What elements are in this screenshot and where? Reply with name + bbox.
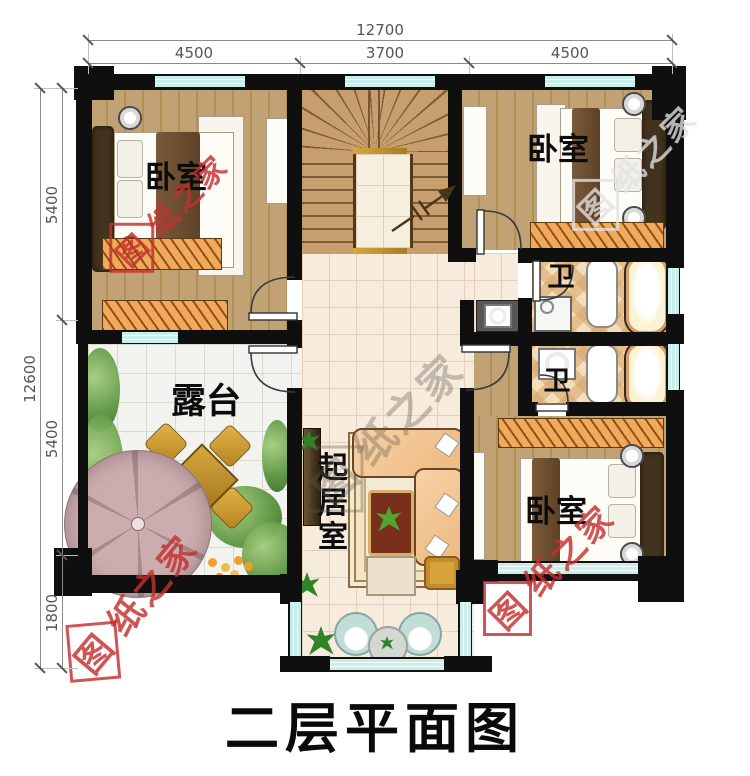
plan-title: 二层平面图 xyxy=(0,684,750,763)
dimension-line xyxy=(88,40,672,41)
room-label-bath-upper: 卫 xyxy=(546,264,576,292)
dim-left-total: 12600 xyxy=(21,349,39,409)
dim-top-seg2: 3700 xyxy=(345,44,425,62)
door-arc xyxy=(251,353,295,392)
dim-left-seg2: 5400 xyxy=(43,414,61,464)
stair-direction-arrow xyxy=(392,192,448,231)
door-leaf xyxy=(249,346,297,353)
dimension-line xyxy=(88,63,672,64)
door-leaf xyxy=(533,261,540,301)
door-arc xyxy=(251,277,295,313)
door-leaf xyxy=(249,313,297,320)
dimension-line xyxy=(62,88,63,668)
door-leaf xyxy=(536,404,568,411)
floor-plan-canvas: 卧室 卧室 卧室 卫 卫 露台 起居室 图纸之家 图纸之家 图纸之家 图纸之家 … xyxy=(0,0,750,776)
watermark-logo: 图 xyxy=(477,578,538,639)
stair-arrow-head xyxy=(438,185,456,202)
dim-left-seg1: 5400 xyxy=(43,180,61,230)
dimension-line xyxy=(40,88,41,668)
dim-top-seg3: 4500 xyxy=(530,44,610,62)
room-label-bath-lower: 卫 xyxy=(542,368,572,396)
watermark-logo: 图 xyxy=(105,221,159,275)
door-leaf xyxy=(462,345,510,352)
dim-left-seg3: 1800 xyxy=(43,588,61,638)
door-leaf xyxy=(477,210,484,254)
extension-line xyxy=(56,555,78,556)
door-arc xyxy=(484,211,521,249)
watermark-logo: 图 xyxy=(298,442,373,517)
room-label-terrace: 露台 xyxy=(158,384,254,421)
dim-top-seg1: 4500 xyxy=(154,44,234,62)
watermark-logo: 图 xyxy=(61,620,126,683)
watermark-logo: 图 xyxy=(567,176,624,233)
dim-top-total: 12700 xyxy=(340,21,420,39)
room-label-bedroom-tr: 卧室 xyxy=(512,134,604,167)
extension-line xyxy=(56,320,78,321)
